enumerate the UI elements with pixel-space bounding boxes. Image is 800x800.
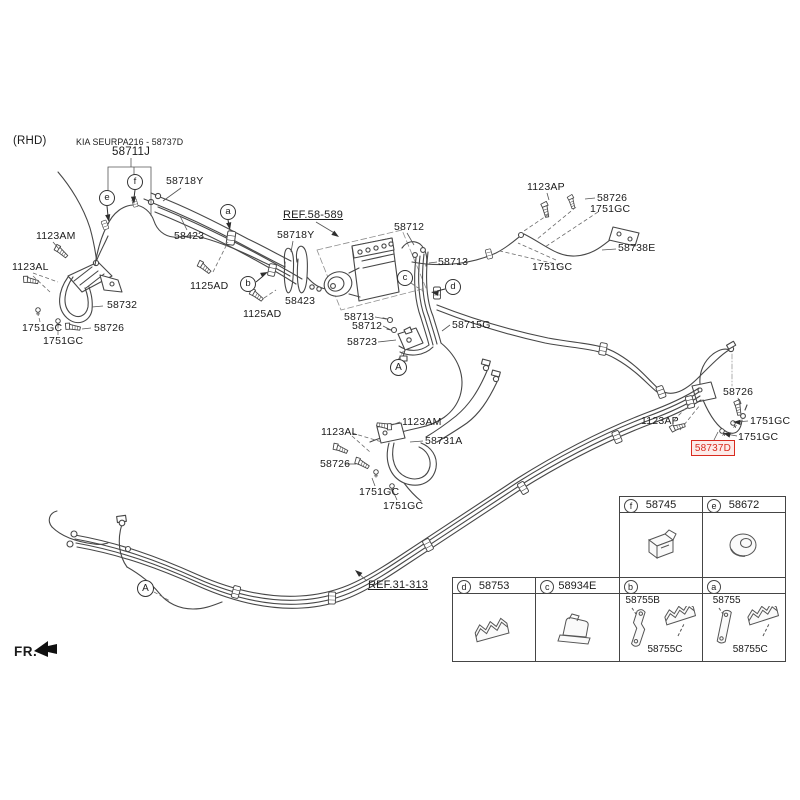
fr-label: FR. <box>14 645 37 659</box>
part-label-1123al-center[interactable]: 1123AL <box>321 427 358 438</box>
part-label-58423-left[interactable]: 58423 <box>174 231 204 242</box>
part-label-1751gc-rear-1[interactable]: 1751GC <box>750 416 790 427</box>
part-label-58712-upper[interactable]: 58712 <box>394 222 424 233</box>
tube-clips <box>101 199 695 604</box>
highlighted-part-box[interactable]: 58737D <box>691 440 735 456</box>
part-label-58731a[interactable]: 58731A <box>425 436 462 447</box>
part-label-58718y-left[interactable]: 58718Y <box>166 176 203 187</box>
callout-c: c <box>397 270 413 286</box>
legend-letter-a: a <box>707 580 721 594</box>
brake-fluid-line-diagram: (RHD) KIA SEURPA216 - 58737D 58711J 5871… <box>0 0 800 800</box>
part-label-1123ap-rear[interactable]: 1123AP <box>641 416 679 427</box>
legend-cell-d[interactable]: d 58753 <box>453 578 535 661</box>
part-label-1751gc-front-1[interactable]: 1751GC <box>22 323 62 334</box>
ref-front-tubes[interactable]: REF.31-313 <box>368 580 428 592</box>
callout-section-a-bottom: A <box>137 580 154 597</box>
center-hose-58731a <box>377 359 500 501</box>
part-label-1751gc-upper-1[interactable]: 1751GC <box>590 204 630 215</box>
legend-part-58755: 58755 <box>713 595 741 606</box>
callout-section-a-top: A <box>390 359 407 376</box>
part-label-1125ad-2[interactable]: 1125AD <box>243 309 281 320</box>
legend-letter-b: b <box>624 580 638 594</box>
part-label-58726-center[interactable]: 58726 <box>320 459 350 470</box>
rivet-icons <box>36 308 738 492</box>
clip-58753-glyph <box>466 605 522 651</box>
legend-part-58755c-a: 58755C <box>733 644 768 655</box>
legend-part-58755b: 58755B <box>626 595 660 606</box>
legend-table-bottom: d 58753 c 58934E <box>452 577 786 662</box>
legend-part-58755c-b: 58755C <box>648 644 683 655</box>
part-label-1751gc-front-2[interactable]: 1751GC <box>43 336 83 347</box>
legend-cell-c[interactable]: c 58934E <box>535 578 618 661</box>
clip-58745-glyph <box>635 524 687 566</box>
part-label-58732[interactable]: 58732 <box>107 300 137 311</box>
legend-cell-e[interactable]: e 58672 <box>702 497 785 577</box>
part-label-58726-rear[interactable]: 58726 <box>723 387 753 398</box>
diagram-line-art <box>0 0 800 800</box>
coiled-tubes-58718y <box>284 246 326 293</box>
part-label-58723[interactable]: 58723 <box>347 337 377 348</box>
part-label-58711j[interactable]: 58711J <box>112 146 150 158</box>
part-label-1751gc-center-2[interactable]: 1751GC <box>383 501 423 512</box>
highlighted-part-number: 58737D <box>695 443 731 454</box>
part-label-58738e[interactable]: 58738E <box>618 243 655 254</box>
part-label-1751gc-upper-2[interactable]: 1751GC <box>532 262 572 273</box>
part-label-58423-abs[interactable]: 58423 <box>285 296 315 307</box>
part-label-1123am-front[interactable]: 1123AM <box>36 231 76 242</box>
part-label-58718y-abs[interactable]: 58718Y <box>277 230 314 241</box>
part-label-1125ad-1[interactable]: 1125AD <box>190 281 228 292</box>
cross-car-tube-bundle <box>67 388 701 608</box>
part-label-1123ap-upper[interactable]: 1123AP <box>527 182 565 193</box>
legend-cell-a[interactable]: a 58755 <box>702 578 785 661</box>
part-label-58712-lower[interactable]: 58712 <box>352 321 382 332</box>
grommet-58672-glyph <box>718 524 770 566</box>
part-label-58715g[interactable]: 58715G <box>452 320 491 331</box>
legend-part-58745: 58745 <box>620 499 702 511</box>
part-label-1123al-front[interactable]: 1123AL <box>12 262 49 273</box>
callout-b: b <box>240 276 256 292</box>
legend-part-58934e: 58934E <box>536 580 618 592</box>
part-label-58726-front[interactable]: 58726 <box>94 323 124 334</box>
legend-table-top: f 58745 e 58672 <box>619 496 786 578</box>
part-label-1751gc-rear-2[interactable]: 1751GC <box>738 432 778 443</box>
variant-label: (RHD) <box>13 135 47 147</box>
callout-d: d <box>445 279 461 295</box>
clip-58934e-glyph <box>549 605 605 651</box>
legend-part-58753: 58753 <box>453 580 535 592</box>
bottom-left-tubes <box>49 511 222 609</box>
part-label-58713-upper[interactable]: 58713 <box>438 257 468 268</box>
ref-abs-unit[interactable]: REF.58-589 <box>283 210 343 222</box>
part-label-1751gc-center-1[interactable]: 1751GC <box>359 487 399 498</box>
legend-cell-b[interactable]: b 58755B <box>619 578 702 661</box>
legend-cell-f[interactable]: f 58745 <box>620 497 702 577</box>
part-label-1123am-center[interactable]: 1123AM <box>402 417 442 428</box>
callout-a: a <box>220 204 236 220</box>
fr-direction-arrow <box>34 641 57 657</box>
legend-part-58672: 58672 <box>703 499 785 511</box>
callout-f: f <box>127 174 143 190</box>
callout-e: e <box>99 190 115 206</box>
